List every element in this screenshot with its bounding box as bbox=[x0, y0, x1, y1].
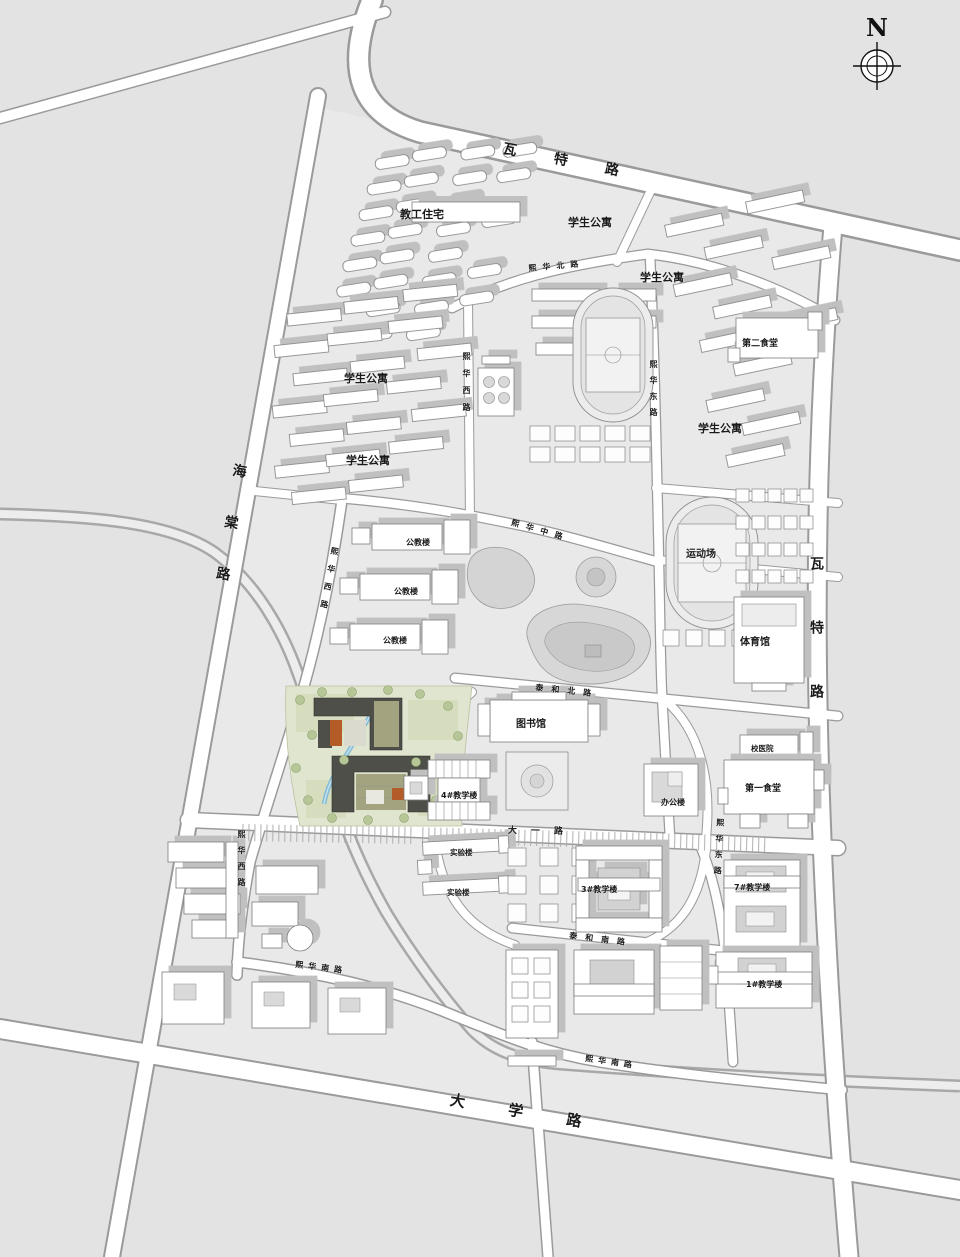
south-central-buildings bbox=[574, 946, 702, 1014]
teaching-no1-building bbox=[708, 952, 812, 1008]
canteen-no2-building bbox=[728, 312, 822, 362]
campus-site-plan: 瓦特路瓦特路海棠路大学路熙华北路熙华中路熙华西路熙华西路熙华西路熙华东路熙华东路… bbox=[0, 0, 960, 1257]
north-stadium bbox=[573, 288, 653, 422]
site-plan-drawing bbox=[0, 0, 960, 1257]
compass-north-label: N bbox=[845, 16, 909, 40]
gymnasium-building bbox=[734, 597, 804, 691]
central-plaza bbox=[506, 752, 568, 810]
teaching-no3-building bbox=[576, 846, 662, 932]
compass-icon bbox=[851, 40, 903, 92]
teaching-no7-building bbox=[724, 860, 800, 958]
compass: N bbox=[845, 16, 909, 96]
office-building-shape bbox=[644, 764, 698, 816]
clinic-building bbox=[740, 732, 813, 758]
